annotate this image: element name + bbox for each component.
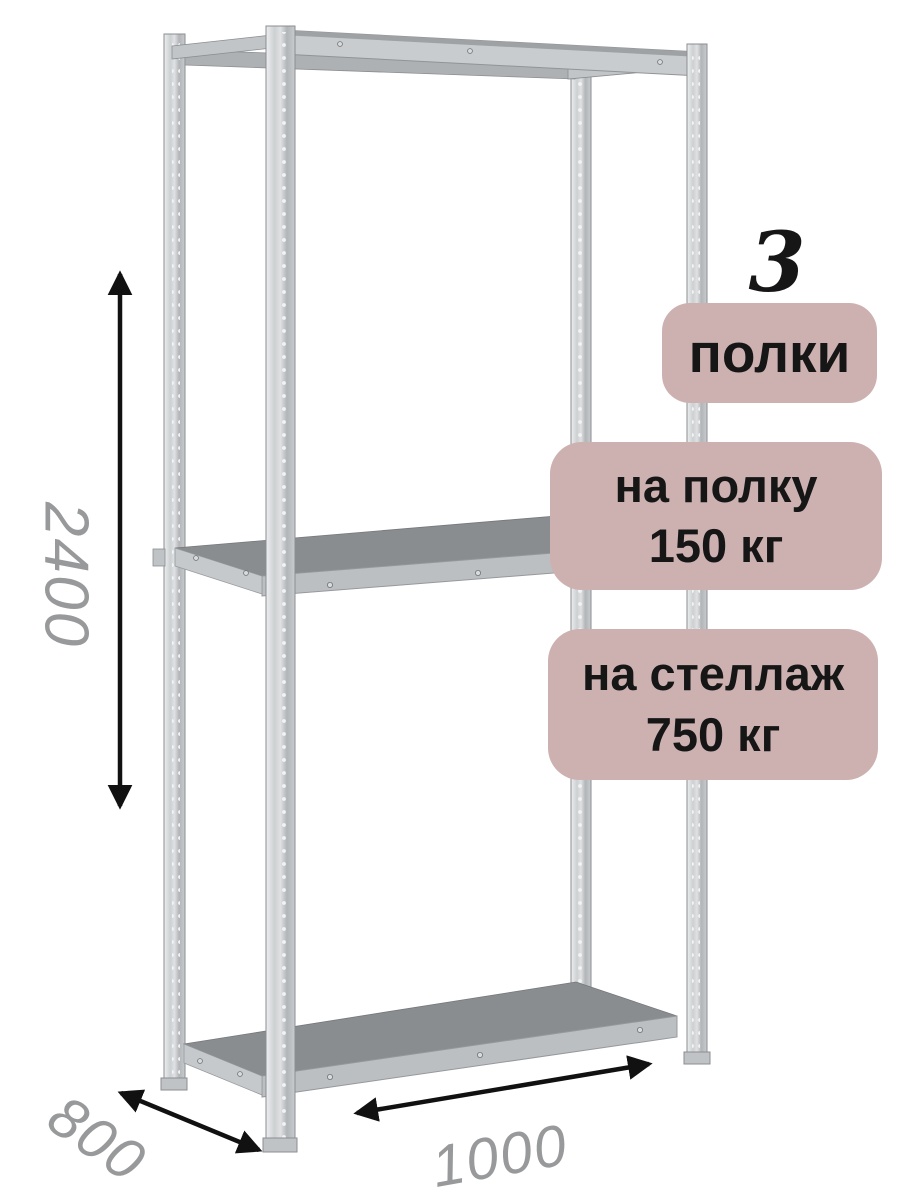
shelving-rack-illustration <box>0 0 900 1200</box>
per-shelf-load-line1: на полку <box>614 456 817 516</box>
shelf-count-number: 3 <box>748 215 805 311</box>
top-shelf <box>172 30 700 79</box>
product-image: 2400 800 1000 3 полки на полку 150 кг на… <box>0 0 900 1200</box>
per-rack-load-badge: на стеллаж 750 кг <box>548 629 878 780</box>
bottom-shelf <box>184 982 677 1097</box>
post-front-left <box>263 26 297 1152</box>
shelf-count-badge-label: полки <box>689 321 851 385</box>
per-rack-load-line2: 750 кг <box>646 705 781 765</box>
per-shelf-load-badge: на полку 150 кг <box>550 442 882 590</box>
per-rack-load-line1: на стеллаж <box>582 644 844 704</box>
height-dimension-label: 2400 <box>31 502 102 648</box>
shelf-count-badge: полки <box>662 303 877 403</box>
per-shelf-load-line2: 150 кг <box>649 516 784 576</box>
